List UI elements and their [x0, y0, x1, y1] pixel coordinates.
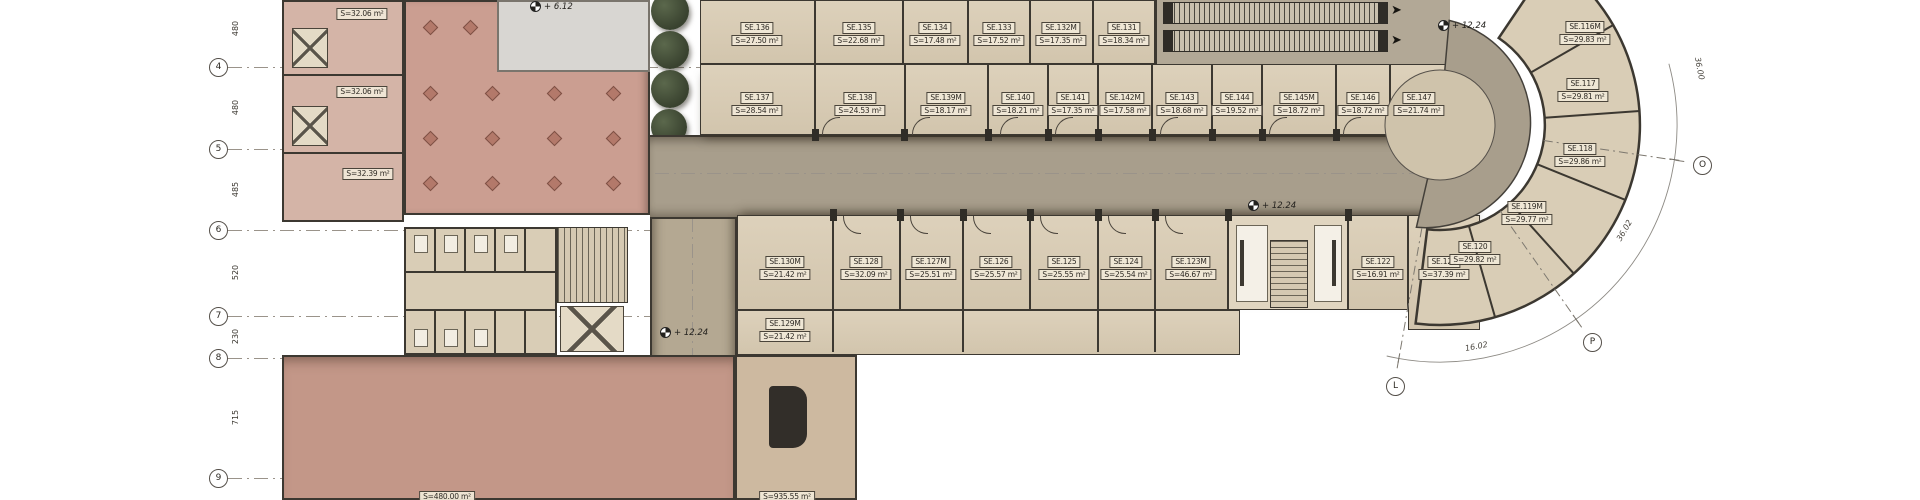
- corridor-centerline: [655, 173, 1430, 174]
- wall: [284, 74, 402, 76]
- level-mark-icon: [1248, 200, 1259, 211]
- radial-dim: 16.02: [1464, 340, 1488, 353]
- room-label-se131: SE.131S=18.34 m²: [1098, 22, 1149, 46]
- room-label-se116m: SE.116MS=29.83 m²: [1559, 21, 1610, 45]
- core-staircase: [1270, 240, 1308, 308]
- room-label-se142m: SE.142MS=17.58 m²: [1099, 92, 1150, 116]
- tree-icon: [651, 31, 689, 69]
- void-skylight: [497, 0, 650, 72]
- grid-bubble-5: 5: [209, 140, 228, 159]
- escalator: [1163, 30, 1388, 52]
- dim-label: 230: [231, 329, 240, 344]
- level-marker-6-12: + 6.12: [530, 1, 573, 12]
- tree-icon: [651, 0, 689, 30]
- room-label-se127m: SE.127MS=25.51 m²: [905, 256, 956, 280]
- dim-label: 485: [231, 182, 240, 197]
- floor-plan-canvas: 4 5 6 7 8 9 480 480 485 520 230 715: [0, 0, 1920, 500]
- level-marker-lobby: + 12.24: [660, 327, 708, 338]
- room-label-se133: SE.133S=17.52 m²: [973, 22, 1024, 46]
- room-label-se146: SE.146S=18.72 m²: [1337, 92, 1388, 116]
- room-label-se138: SE.138S=24.53 m²: [834, 92, 885, 116]
- mezzanine-band: [737, 310, 1240, 355]
- grid-bubble-P: P: [1583, 333, 1602, 352]
- level-marker-core: + 12.24: [1248, 200, 1296, 211]
- wall: [284, 152, 402, 154]
- room-label-se141: SE.141S=17.35 m²: [1047, 92, 1098, 116]
- direction-arrow-icon: ➤: [1391, 4, 1402, 17]
- room-label-se139m: SE.139MS=18.17 m²: [920, 92, 971, 116]
- room-label-se135: SE.135S=22.68 m²: [833, 22, 884, 46]
- room-label-se117: SE.117S=29.81 m²: [1557, 78, 1608, 102]
- grid-bubble-6: 6: [209, 221, 228, 240]
- room-label-se144: SE.144S=19.52 m²: [1211, 92, 1262, 116]
- level-marker-escalator: + 12.24: [1438, 20, 1486, 31]
- radial-dim: 36.00: [1693, 56, 1706, 80]
- room-label-se129m: SE.129MS=21.42 m²: [759, 318, 810, 342]
- room-label-se134: SE.134S=17.48 m²: [909, 22, 960, 46]
- room-label-se125: SE.125S=25.55 m²: [1038, 256, 1089, 280]
- dim-label: 480: [231, 21, 240, 36]
- area-label-left-2: S=32.06 m²: [336, 86, 387, 98]
- grid-bubble-L: L: [1386, 377, 1405, 396]
- room-label-se145m: SE.145MS=18.72 m²: [1273, 92, 1324, 116]
- room-label-se130m: SE.130MS=21.42 m²: [759, 256, 810, 280]
- dim-label: 480: [231, 100, 240, 115]
- room-label-se123m: SE.123MS=46.67 m²: [1165, 256, 1216, 280]
- room-label-se126: SE.126S=25.57 m²: [970, 256, 1021, 280]
- room-label-se140: SE.140S=18.21 m²: [992, 92, 1043, 116]
- dim-label: 520: [231, 265, 240, 280]
- grid-bubble-O: O: [1693, 156, 1712, 175]
- grid-bubble-8: 8: [209, 349, 228, 368]
- grid-bubble-7: 7: [209, 307, 228, 326]
- grand-piano: [769, 386, 807, 448]
- room-label-se136: SE.136S=27.50 m²: [731, 22, 782, 46]
- escalator: [1163, 2, 1388, 24]
- room-label-se147: SE.147S=21.74 m²: [1393, 92, 1444, 116]
- grid-bubble-4: 4: [209, 58, 228, 77]
- radial-dim: 36.02: [1615, 218, 1634, 242]
- area-label-left-1: S=32.06 m²: [336, 8, 387, 20]
- room-label-se143: SE.143S=18.68 m²: [1156, 92, 1207, 116]
- area-label-hall-small: S=935.55 m²: [759, 491, 815, 500]
- room-label-se122: SE.122S=16.91 m²: [1352, 256, 1403, 280]
- main-corridor: [650, 135, 1440, 219]
- hall-large: [282, 355, 735, 500]
- direction-arrow-icon: ➤: [1391, 34, 1402, 47]
- room-label-se118: SE.118S=29.86 m²: [1554, 143, 1605, 167]
- tree-icon: [651, 70, 689, 108]
- elevator-shaft: [292, 106, 328, 146]
- level-mark-icon: [660, 327, 671, 338]
- room-label-se124: SE.124S=25.54 m²: [1100, 256, 1151, 280]
- area-label-hall-large: S=480.00 m²: [419, 491, 475, 500]
- room-label-se128: SE.128S=32.09 m²: [840, 256, 891, 280]
- elevator-shaft: [560, 306, 624, 352]
- staircase: [557, 227, 628, 303]
- level-mark-icon: [530, 1, 541, 12]
- area-label-left-3: S=32.39 m²: [342, 168, 393, 180]
- elevator-shaft: [292, 28, 328, 68]
- room-label-se137: SE.137S=28.54 m²: [731, 92, 782, 116]
- restroom-block: [404, 227, 557, 355]
- room-label-se119m: SE.119MS=29.77 m²: [1501, 201, 1552, 225]
- room-label-se120: SE.120S=29.82 m²: [1449, 241, 1500, 265]
- grid-bubble-9: 9: [209, 469, 228, 488]
- level-mark-icon: [1438, 20, 1449, 31]
- dim-label: 715: [231, 410, 240, 425]
- room-label-se132m: SE.132MS=17.35 m²: [1035, 22, 1086, 46]
